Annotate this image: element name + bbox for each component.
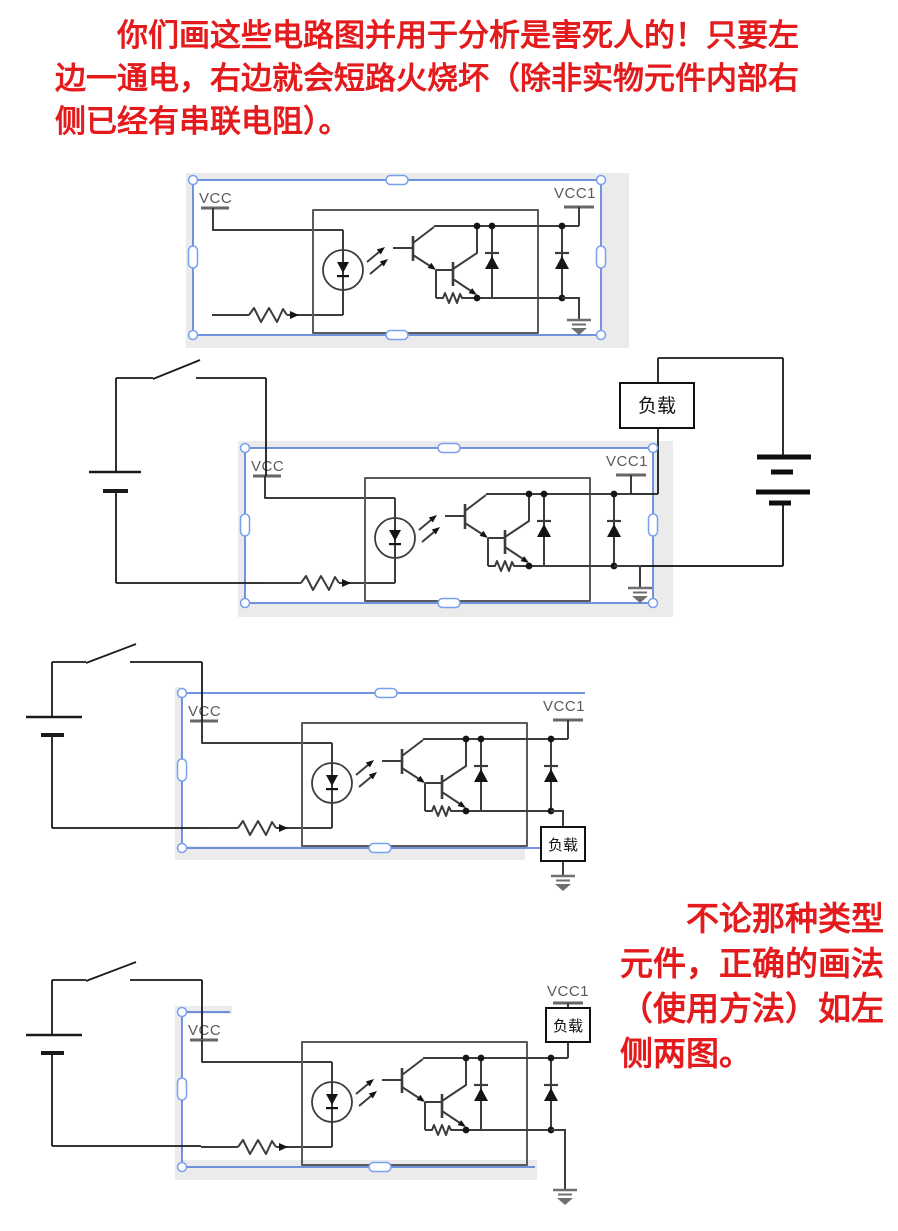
load-label: 负载 xyxy=(638,395,676,417)
page: 你们画这些电路图并用于分析是害死人的！只要左 边一通电，右边就会短路火烧坏（除非… xyxy=(0,0,898,1231)
load-box: 负载 xyxy=(541,827,585,861)
load-box: 负载 xyxy=(546,1008,590,1042)
switch-blade xyxy=(153,360,200,379)
load-label: 负载 xyxy=(553,1018,583,1035)
vcc1-load-stack: VCC1 负载 xyxy=(546,983,590,1058)
circuit-diagrams-canvas: VCC xyxy=(0,0,898,1231)
load-box: 负载 xyxy=(620,383,694,428)
ground-icon xyxy=(551,876,575,891)
load-label: 负载 xyxy=(548,837,578,854)
selection-frame[interactable] xyxy=(182,693,585,848)
vcc1-label: VCC1 xyxy=(547,983,589,1000)
ground-icon xyxy=(553,1190,577,1205)
selection-frame[interactable] xyxy=(182,1012,535,1167)
